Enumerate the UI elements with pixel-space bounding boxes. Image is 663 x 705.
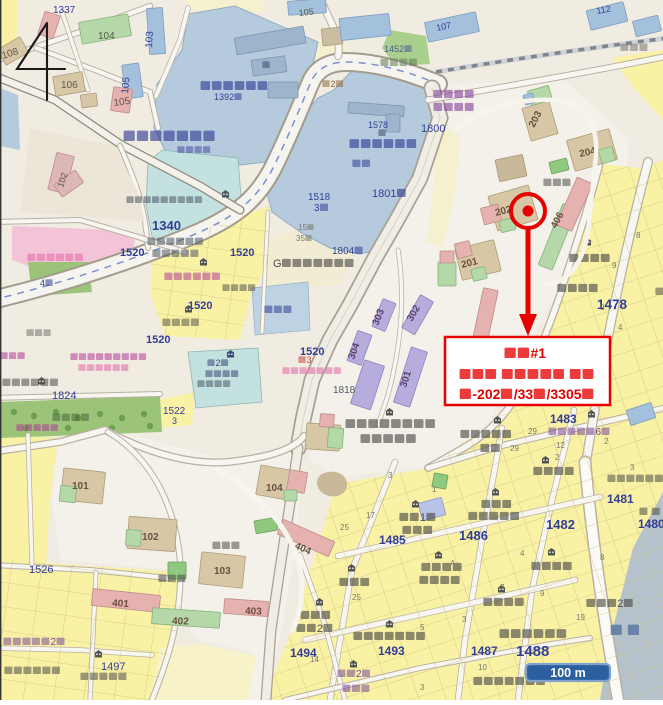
svg-text:1804: 1804 — [332, 246, 355, 257]
svg-text:17: 17 — [366, 511, 375, 520]
svg-text:3: 3 — [462, 615, 467, 624]
svg-text:1818: 1818 — [333, 385, 356, 396]
svg-text:2: 2 — [317, 623, 323, 635]
svg-text:3: 3 — [314, 203, 320, 214]
svg-text:1452: 1452 — [384, 44, 404, 54]
svg-text:1: 1 — [420, 512, 426, 524]
svg-text:1337: 1337 — [53, 5, 76, 16]
svg-text:/3305: /3305 — [547, 386, 582, 402]
svg-text:G: G — [273, 258, 282, 270]
svg-text:3: 3 — [630, 463, 635, 472]
svg-text:29: 29 — [528, 427, 537, 436]
svg-text:8: 8 — [636, 231, 641, 240]
svg-text:2: 2 — [617, 598, 623, 610]
svg-text:1340: 1340 — [152, 218, 181, 233]
svg-text:25: 25 — [340, 523, 349, 532]
svg-text:1392: 1392 — [214, 92, 234, 102]
svg-text:1487: 1487 — [471, 644, 498, 658]
svg-text:19: 19 — [576, 613, 585, 622]
svg-text:1486: 1486 — [459, 528, 488, 543]
svg-text:29: 29 — [510, 444, 519, 453]
svg-text:5: 5 — [420, 623, 425, 632]
svg-text:3: 3 — [388, 471, 393, 480]
svg-text:15: 15 — [298, 223, 307, 232]
svg-text:14: 14 — [310, 655, 319, 664]
svg-text:3: 3 — [172, 416, 177, 426]
svg-text:1497: 1497 — [101, 661, 125, 673]
svg-text:403: 403 — [245, 606, 262, 618]
svg-text:1488: 1488 — [516, 643, 549, 660]
svg-text:105: 105 — [298, 6, 314, 18]
svg-text:35: 35 — [296, 234, 305, 243]
svg-text:A: A — [450, 559, 456, 568]
svg-text:1483: 1483 — [550, 412, 577, 426]
svg-text:1518: 1518 — [308, 192, 331, 203]
svg-text:2: 2 — [216, 358, 221, 368]
svg-text:1801: 1801 — [372, 188, 396, 200]
svg-text:103: 103 — [214, 566, 231, 577]
svg-text:2: 2 — [555, 453, 560, 462]
svg-text:9: 9 — [600, 303, 605, 312]
svg-text:-202: -202 — [472, 386, 500, 402]
svg-text:105: 105 — [120, 76, 132, 94]
svg-text:2: 2 — [331, 79, 336, 89]
svg-text:3: 3 — [307, 355, 312, 365]
svg-text:#1: #1 — [531, 345, 547, 361]
svg-text:1578: 1578 — [368, 120, 388, 130]
svg-text:101: 101 — [72, 481, 89, 492]
svg-text:9: 9 — [612, 261, 617, 270]
svg-text:8: 8 — [600, 553, 605, 562]
svg-text:402: 402 — [172, 616, 189, 628]
svg-text:104: 104 — [98, 31, 115, 42]
svg-text:2: 2 — [604, 437, 609, 446]
svg-text:1520: 1520 — [120, 247, 144, 259]
svg-text:1800: 1800 — [421, 123, 445, 135]
svg-text:1481: 1481 — [607, 492, 634, 506]
svg-text:4: 4 — [40, 278, 45, 288]
svg-text:4: 4 — [618, 323, 623, 332]
svg-text:1485: 1485 — [379, 533, 406, 547]
svg-text:6: 6 — [596, 427, 602, 438]
svg-text:7: 7 — [500, 583, 505, 592]
svg-text:1: 1 — [432, 485, 437, 494]
svg-text:1480: 1480 — [638, 517, 663, 531]
svg-text:2: 2 — [51, 637, 57, 648]
svg-text:106: 106 — [61, 80, 78, 91]
svg-text:1520: 1520 — [146, 334, 170, 346]
svg-text:401: 401 — [112, 598, 130, 610]
svg-text:1493: 1493 — [378, 644, 405, 658]
svg-text:1520: 1520 — [230, 247, 254, 259]
svg-text:/33: /33 — [514, 386, 534, 402]
svg-text:1526: 1526 — [29, 564, 53, 576]
svg-text:1482: 1482 — [546, 517, 575, 532]
svg-text:25: 25 — [352, 593, 361, 602]
svg-text:104: 104 — [266, 483, 283, 494]
svg-text:1520: 1520 — [300, 346, 324, 358]
svg-text:10: 10 — [478, 663, 487, 672]
svg-text:12: 12 — [556, 441, 565, 450]
svg-text:1824: 1824 — [52, 390, 76, 402]
svg-text:103: 103 — [144, 30, 156, 48]
svg-text:9: 9 — [540, 589, 545, 598]
svg-text:100 m: 100 m — [550, 666, 585, 680]
svg-text:3: 3 — [420, 683, 425, 692]
svg-text:4: 4 — [520, 549, 525, 558]
svg-text:2: 2 — [356, 669, 362, 680]
svg-text:102: 102 — [142, 532, 159, 543]
